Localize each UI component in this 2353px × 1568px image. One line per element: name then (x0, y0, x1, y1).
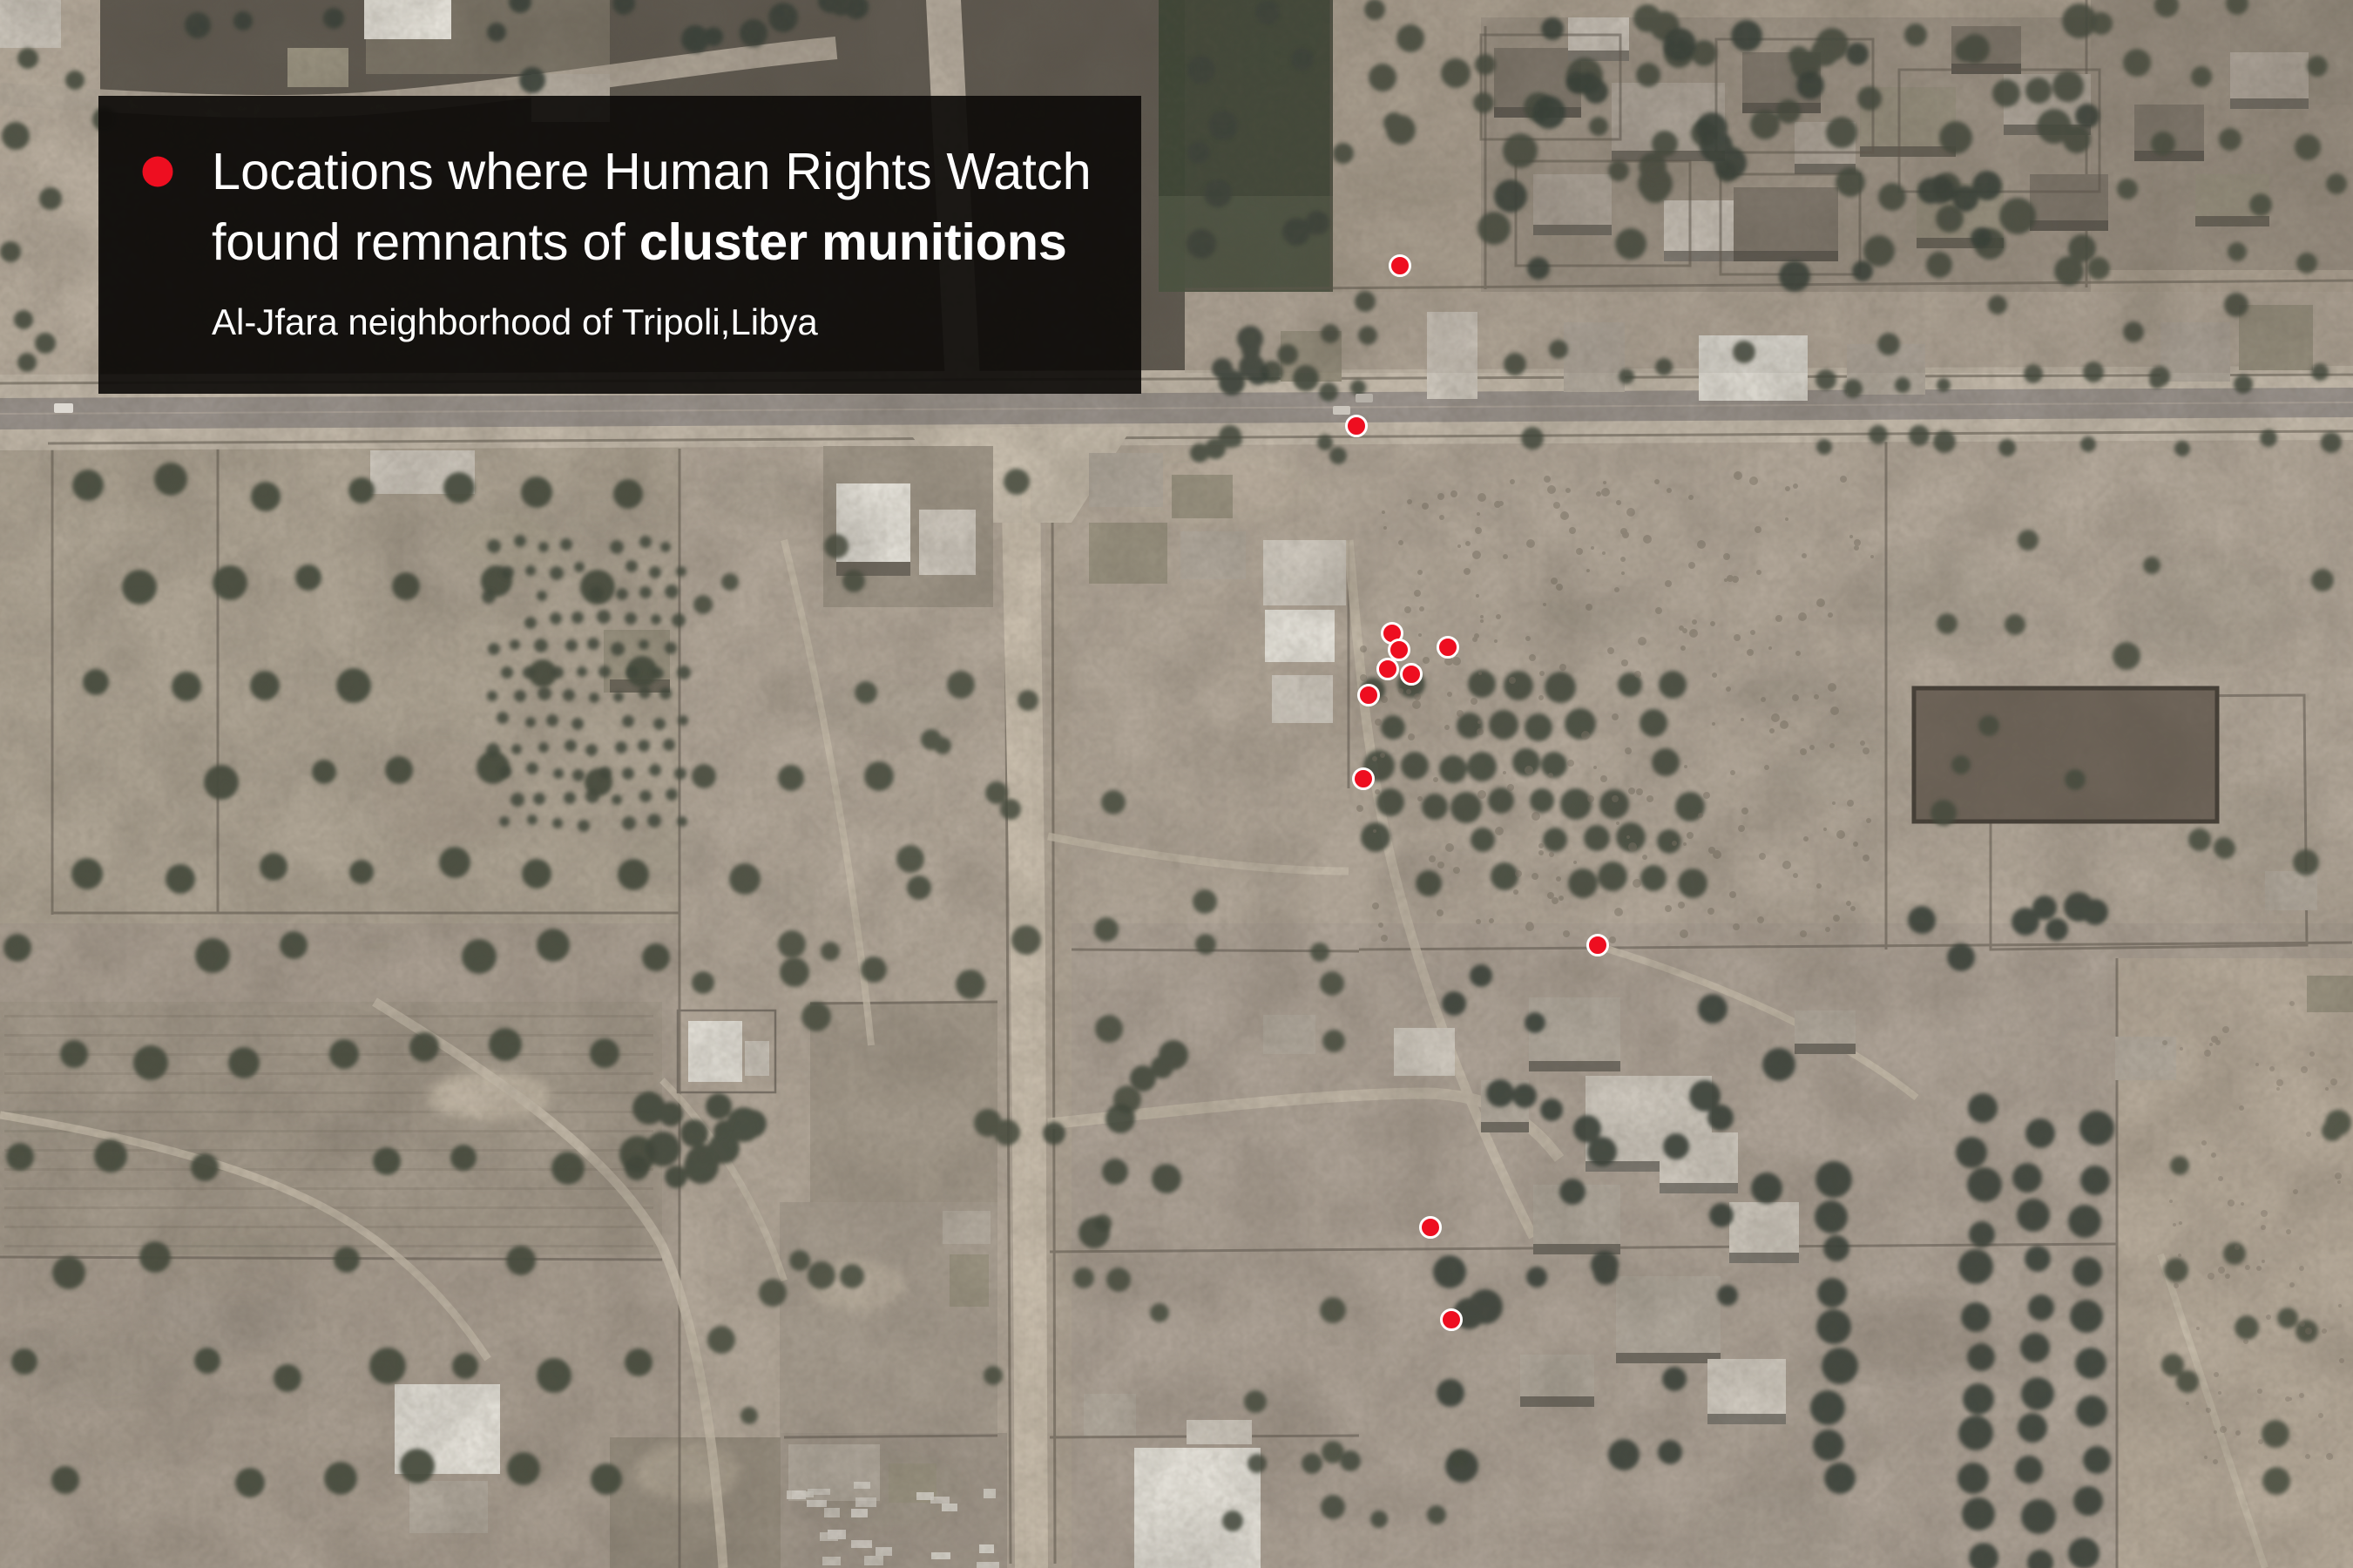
svg-text:found remnants of cluster muni: found remnants of cluster munitions (212, 213, 1067, 271)
svg-text:Al-Jfara neighborhood of Tripo: Al-Jfara neighborhood of Tripoli,Libya (212, 301, 818, 342)
svg-text:Locations where Human Rights W: Locations where Human Rights Watch (212, 142, 1092, 200)
